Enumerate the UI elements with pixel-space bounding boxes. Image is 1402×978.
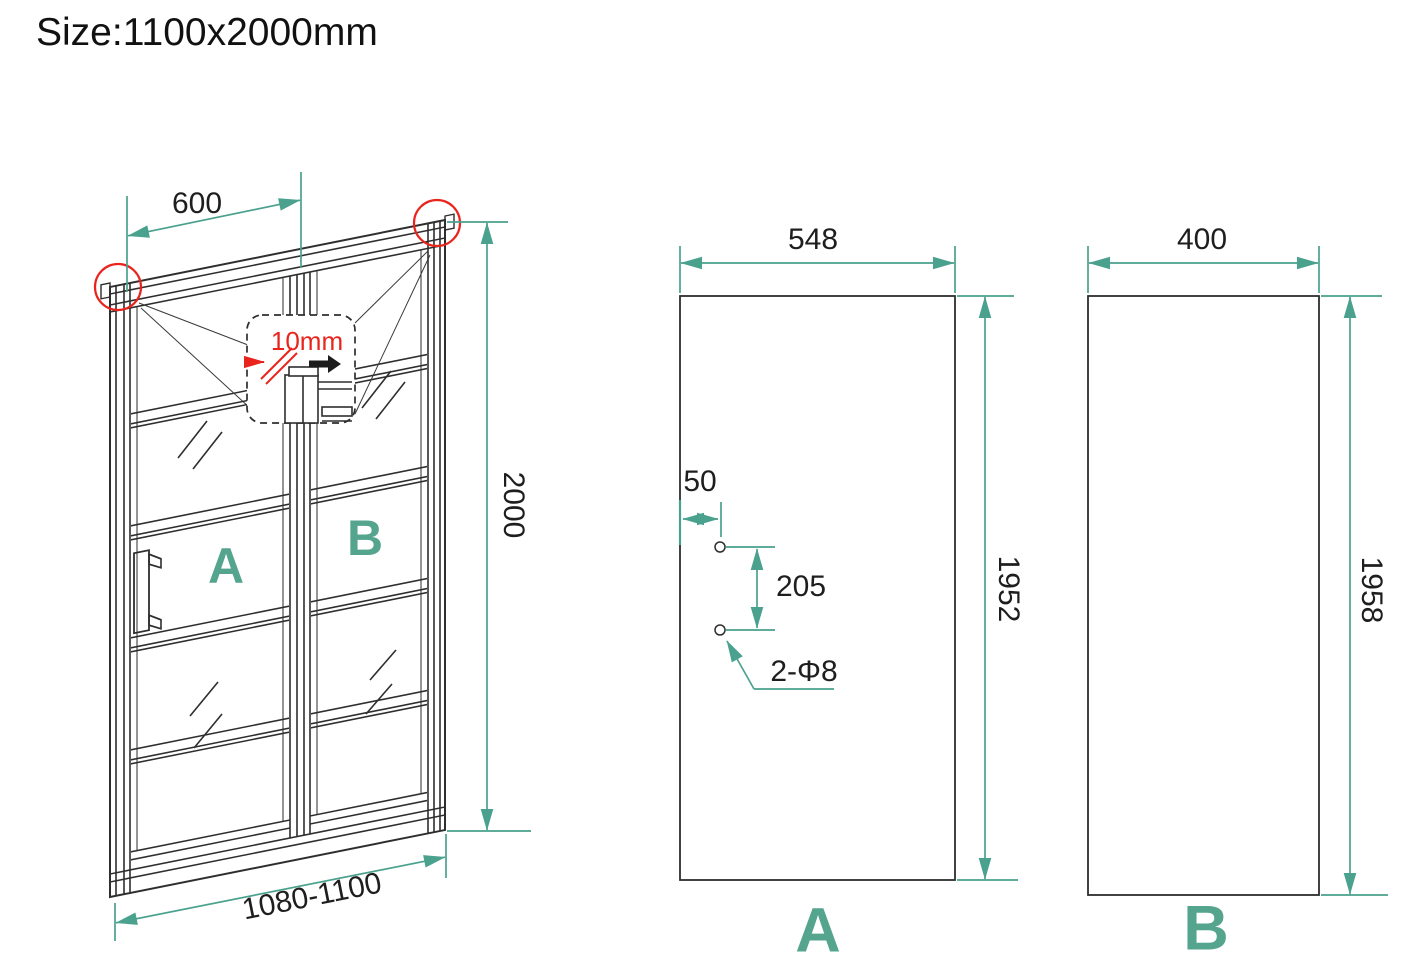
panel-b-letter: B [1183, 898, 1229, 961]
panel-a-width-label: 548 [788, 225, 838, 255]
panel-a-height-label: 1952 [993, 556, 1023, 623]
top-left-wall-profile [101, 283, 110, 299]
hole-top [715, 542, 725, 552]
dim-label-height: 2000 [498, 472, 528, 539]
dimension-lines [115, 172, 1388, 941]
glass-thickness-label: 10mm [271, 328, 343, 354]
hole-offset-label: 50 [683, 467, 716, 497]
panel-b-height-label: 1958 [1356, 557, 1386, 624]
panel-b-width-label: 400 [1177, 225, 1227, 255]
holes-note-label: 2-Φ8 [770, 657, 837, 687]
panel-b-outline [1088, 296, 1319, 895]
door-handle [134, 548, 161, 634]
hole-spacing-label: 205 [776, 572, 826, 602]
panel-a-letter: A [795, 900, 841, 963]
hole-bottom [715, 625, 725, 635]
door-panel-b-letter: B [347, 513, 383, 563]
technical-drawing-page: Size:1100x2000mm 600 2000 1080-1100 A B … [0, 0, 1402, 978]
size-title: Size:1100x2000mm [36, 11, 378, 55]
door-panel-a-letter: A [208, 541, 244, 591]
dim-label-top-width: 600 [172, 189, 222, 219]
